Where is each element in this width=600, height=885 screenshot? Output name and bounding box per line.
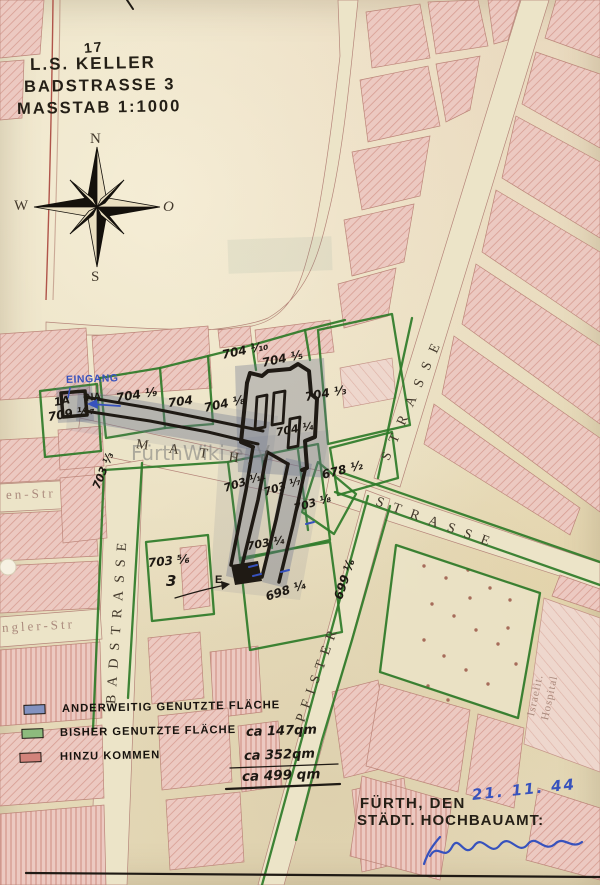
compass-label-north: N <box>90 131 101 148</box>
exit-label: E <box>215 574 222 586</box>
faded-stamp <box>227 236 332 274</box>
entrance-label: EINGANG <box>66 372 119 386</box>
legend-swatch-red <box>20 753 41 763</box>
legend-item-3-value: ca 352qm <box>244 747 315 764</box>
legend-total-value: ca 499 qm <box>242 766 321 785</box>
compass-rose <box>34 147 160 267</box>
compass-label-south: S <box>91 269 99 286</box>
footer-office-line: STÄDT. HOCHBAUAMT: <box>357 812 544 829</box>
title-scale: MASSTAB 1:1000 <box>17 97 182 119</box>
title-address: BADSTRASSE 3 <box>24 75 176 97</box>
legend-item-2-value: ca 147qm <box>246 723 317 740</box>
footer-city-line: FÜRTH, DEN <box>360 795 466 812</box>
hole-punch <box>0 559 16 575</box>
legend-swatch-blue <box>24 705 45 715</box>
legend-swatches <box>20 705 45 763</box>
na-label: NA <box>85 390 101 404</box>
legend-swatch-green <box>22 729 43 739</box>
title-owner: L.S. KELLER <box>30 53 156 75</box>
legend-item-3-label: HINZU KOMMEN <box>60 749 160 763</box>
scanned-site-plan: 17 L.S. KELLER BADSTRASSE 3 MASSTAB 1:10… <box>0 0 600 885</box>
compass-label-east: O <box>163 199 174 216</box>
parcel-label-house-3: 3 <box>166 572 176 590</box>
street-en-str: en-Str <box>6 485 56 503</box>
compass-label-west: W <box>14 198 28 215</box>
